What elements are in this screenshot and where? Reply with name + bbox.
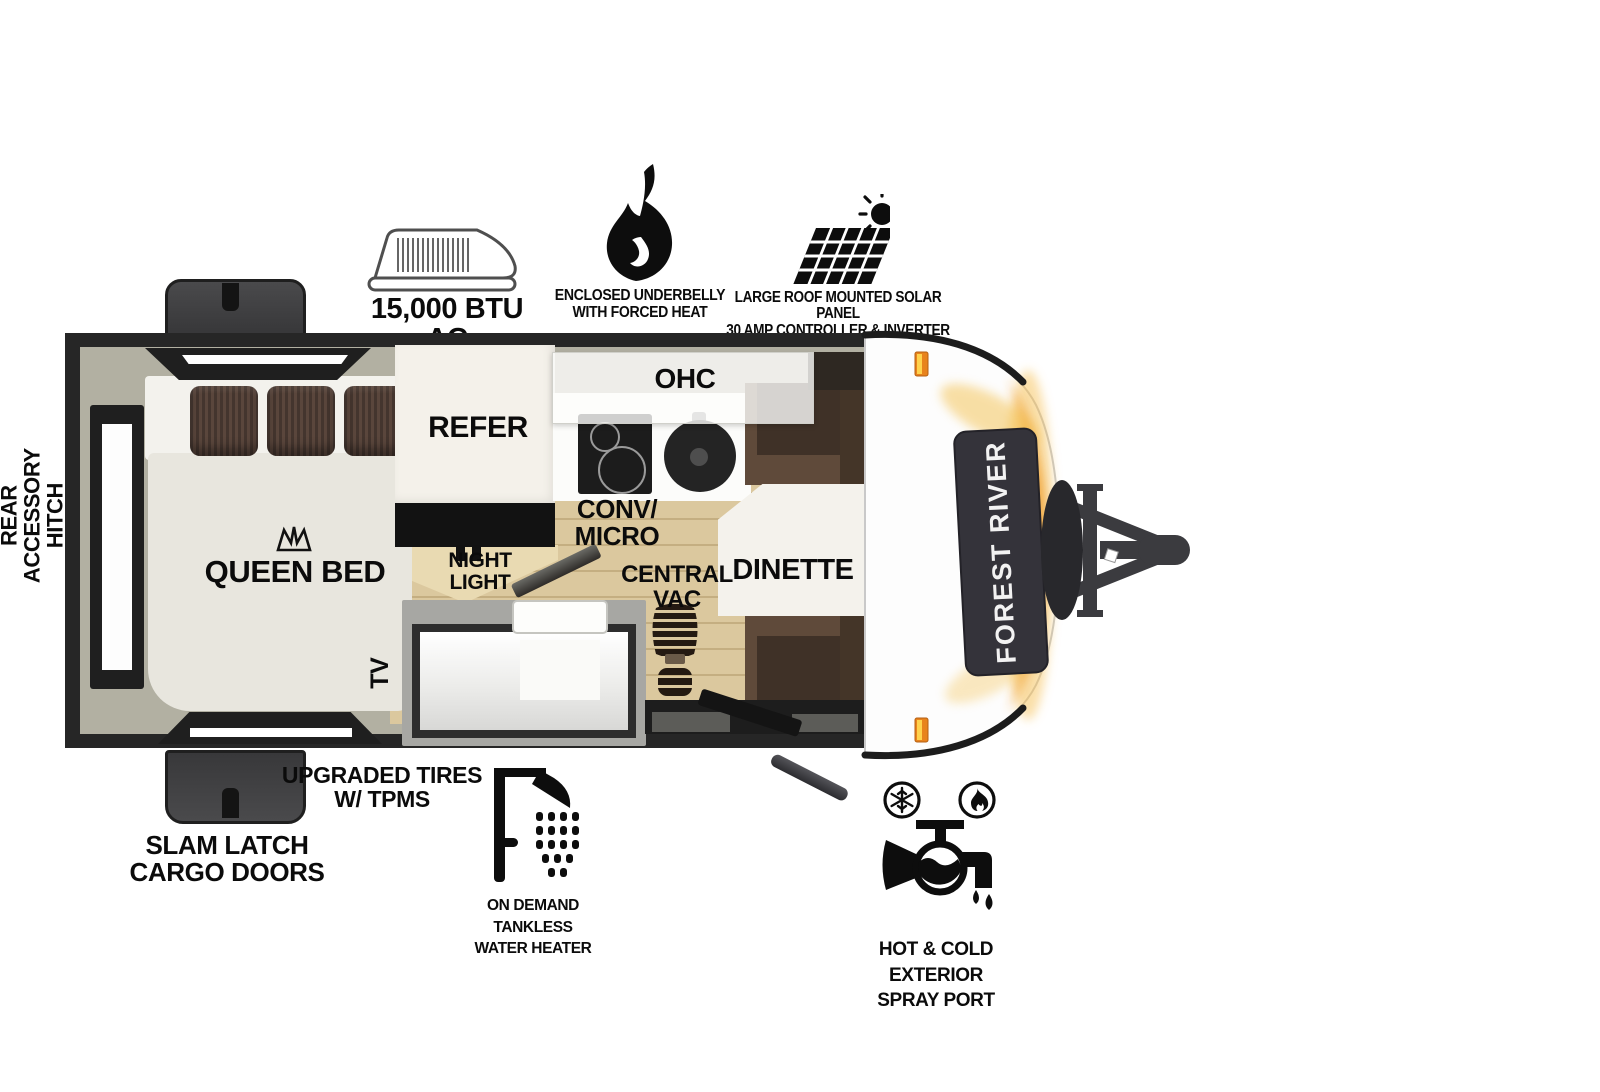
shower-pan-window — [520, 640, 600, 700]
cargo-door-bottom-latch — [222, 788, 239, 818]
flame-small-icon — [971, 788, 988, 811]
vac-line1: CENTRAL — [617, 562, 737, 587]
rear-hitch-label: REAR ACCESSORY HITCH — [0, 396, 67, 636]
window-top-glass — [182, 355, 348, 364]
tongue-hitch — [1040, 455, 1210, 655]
marker-light — [915, 352, 928, 376]
spray-line2: SPRAY PORT — [830, 988, 1042, 1014]
pillow — [190, 386, 258, 456]
night-line1: NIGHT — [420, 550, 540, 572]
heater-line1: ON DEMAND — [448, 895, 618, 917]
tv-text: TV — [367, 645, 393, 701]
spray-port-icon — [858, 778, 1010, 928]
refer-lower-cabinet — [395, 503, 555, 547]
window-left-glass — [102, 424, 132, 670]
queen-bed-text: QUEEN BED — [195, 556, 395, 589]
underbelly-line2: WITH FORCED HEAT — [552, 305, 728, 322]
window-top — [145, 348, 371, 380]
tv-label: TV — [367, 645, 393, 701]
crown-icon — [274, 524, 314, 554]
grab-handle — [769, 753, 850, 803]
cargo-line2: CARGO DOORS — [112, 859, 342, 886]
marker-light — [915, 718, 928, 742]
bath-sink-cutout — [512, 600, 608, 634]
spray-port-label: HOT & COLD EXTERIOR SPRAY PORT — [830, 937, 1042, 1014]
snowflake-icon — [892, 788, 913, 812]
tires-line1: UPGRADED TIRES — [262, 763, 502, 787]
cargo-line1: SLAM LATCH — [112, 832, 342, 859]
shower-icon — [486, 766, 586, 888]
spray-line1: HOT & COLD EXTERIOR — [830, 937, 1042, 988]
rv-floorplan-diagram: 15,000 BTU AC ENCLOSED UNDERBELLY WITH F… — [0, 0, 1600, 1092]
boot-print-icon — [648, 604, 702, 699]
cargo-door-top-latch — [222, 283, 239, 311]
conv-micro-label: CONV/ MICRO — [557, 496, 677, 551]
dinette-bench-bottom-back — [757, 636, 840, 702]
tires-line2: W/ TPMS — [262, 787, 502, 811]
ac-unit-icon — [365, 222, 523, 294]
cooktop-burner-large — [598, 446, 646, 494]
ohc-text: OHC — [630, 364, 740, 393]
solar-panel-icon — [786, 194, 890, 294]
tires-label: UPGRADED TIRES W/ TPMS — [262, 763, 502, 811]
night-light-label: NIGHT LIGHT — [420, 550, 540, 594]
vac-line2: VAC — [617, 587, 737, 612]
window-bottom-glass — [190, 728, 352, 737]
ohc-label: OHC — [630, 364, 740, 393]
rear-hitch-line3: HITCH — [44, 396, 67, 636]
queen-bed-label: QUEEN BED — [195, 556, 395, 589]
pillow — [267, 386, 335, 456]
underbelly-label: ENCLOSED UNDERBELLY WITH FORCED HEAT — [552, 288, 728, 322]
refer-text: REFER — [398, 412, 558, 444]
sink-drain — [690, 448, 708, 466]
heater-line2: TANKLESS — [448, 917, 618, 939]
night-line2: LIGHT — [420, 572, 540, 594]
water-heater-label: ON DEMAND TANKLESS WATER HEATER — [448, 895, 618, 960]
cargo-label: SLAM LATCH CARGO DOORS — [112, 832, 342, 887]
entry-step-tread — [652, 712, 730, 732]
heater-line3: WATER HEATER — [448, 938, 618, 960]
brand-badge: FOREST RIVER — [954, 428, 1049, 676]
rear-hitch-line2: ACCESSORY — [20, 396, 43, 636]
underbelly-line1: ENCLOSED UNDERBELLY — [552, 288, 728, 305]
refer-label: REFER — [398, 412, 558, 444]
central-vac-label: CENTRAL VAC — [617, 562, 737, 612]
rear-hitch-line1: REAR — [0, 396, 20, 636]
conv-line1: CONV/ — [557, 496, 677, 523]
solar-line1: LARGE ROOF MOUNTED SOLAR PANEL — [715, 290, 961, 323]
flame-icon — [594, 160, 686, 288]
conv-line2: MICRO — [557, 523, 677, 550]
